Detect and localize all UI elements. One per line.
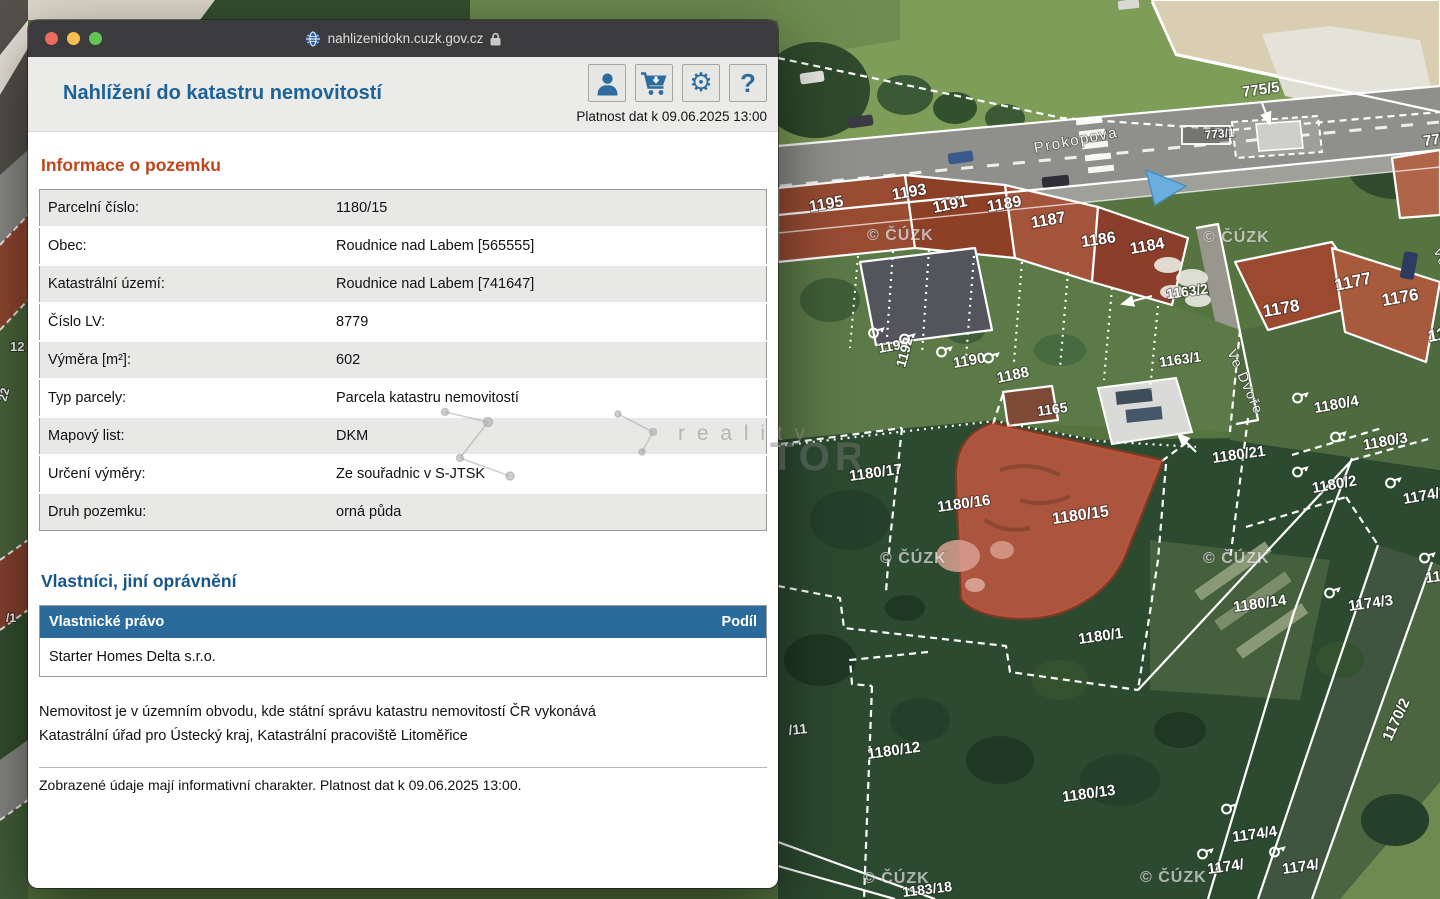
table-row: Druh pozemku: orná půda	[40, 493, 767, 531]
parcel-label: 773/1	[1204, 125, 1235, 142]
header-toolbar: ⚙ ?	[588, 64, 767, 102]
table-row: Parcelní číslo: 1180/15	[40, 190, 767, 228]
cart-button[interactable]	[635, 64, 673, 102]
owners-table-header: Vlastnické právo Podíl	[40, 606, 766, 638]
table-row: Typ parcely: Parcela katastru nemovitost…	[40, 379, 767, 417]
section-heading-owners: Vlastníci, jiní oprávnění	[41, 571, 767, 592]
parcel-label: 12	[10, 339, 24, 354]
help-button[interactable]: ?	[729, 64, 767, 102]
app-title: Nahlížení do katastru nemovitostí	[63, 82, 382, 105]
site-favicon-icon	[305, 31, 321, 47]
cuzk-copyright-watermark: © ČÚZK	[1203, 548, 1270, 567]
cuzk-copyright-watermark: © ČÚZK	[867, 225, 934, 244]
parcel-label: /11	[788, 720, 808, 738]
close-window-button[interactable]	[45, 32, 58, 45]
screen: { "window": { "titlebar": { "url": "nahl…	[0, 0, 1440, 899]
cart-icon	[639, 70, 669, 97]
owners-col-share: Podíl	[722, 614, 757, 630]
cuzk-copyright-watermark: © ČÚZK	[863, 868, 930, 887]
titlebar[interactable]: nahlizenidokn.cuzk.gov.cz	[28, 20, 778, 57]
disclaimer-text: Zobrazené údaje mají informativní charak…	[39, 777, 767, 793]
table-row: Číslo LV: 8779	[40, 303, 767, 341]
table-row: Mapový list: DKM	[40, 417, 767, 455]
page-content: Informace o pozemku Parcelní číslo: 1180…	[28, 155, 778, 793]
cuzk-copyright-watermark: © ČÚZK	[880, 548, 947, 567]
owners-table: Vlastnické právo Podíl Starter Homes Del…	[39, 605, 767, 677]
parcel-label: 117	[1424, 567, 1440, 587]
user-icon	[594, 70, 621, 97]
gear-icon: ⚙	[689, 70, 712, 96]
table-row: Určení výměry: Ze souřadnic v S-JTSK	[40, 455, 767, 493]
cuzk-copyright-watermark: © ČÚZK	[1203, 227, 1270, 246]
lock-icon	[490, 32, 501, 46]
parcel-label: /1	[6, 611, 16, 625]
divider	[39, 767, 767, 768]
owner-name: Starter Homes Delta s.r.o.	[49, 649, 216, 665]
minimize-window-button[interactable]	[67, 32, 80, 45]
app-header: Nahlížení do katastru nemovitostí ⚙	[28, 57, 778, 132]
user-account-button[interactable]	[588, 64, 626, 102]
table-row: Výměra [m²]: 602	[40, 341, 767, 379]
data-validity-text: Platnost dat k 09.06.2025 13:00	[576, 109, 767, 124]
owners-col-right: Vlastnické právo	[49, 614, 164, 630]
zoom-window-button[interactable]	[89, 32, 102, 45]
table-row: Katastrální území: Roudnice nad Labem [7…	[40, 265, 767, 303]
window-controls	[45, 20, 102, 57]
url-text: nahlizenidokn.cuzk.gov.cz	[328, 31, 484, 46]
section-heading-parcel-info: Informace o pozemku	[41, 155, 767, 176]
parcel-info-table: Parcelní číslo: 1180/15 Obec: Roudnice n…	[39, 189, 767, 531]
owner-row: Starter Homes Delta s.r.o.	[40, 638, 766, 676]
cuzk-copyright-watermark: © ČÚZK	[1140, 867, 1207, 886]
jurisdiction-note: Nemovitost je v územním obvodu, kde stát…	[39, 700, 767, 748]
settings-button[interactable]: ⚙	[682, 64, 720, 102]
question-mark-icon: ?	[740, 68, 756, 99]
table-row: Obec: Roudnice nad Labem [565555]	[40, 227, 767, 265]
browser-window: nahlizenidokn.cuzk.gov.cz Nahlížení do k…	[28, 20, 778, 888]
